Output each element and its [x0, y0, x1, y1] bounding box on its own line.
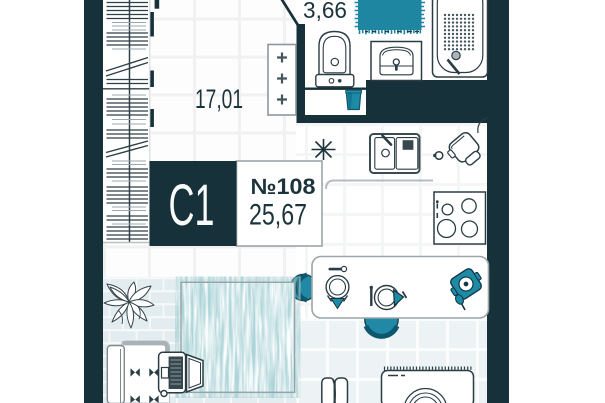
svg-text:C1: C1	[169, 173, 215, 238]
svg-text:3,66: 3,66	[303, 0, 347, 23]
svg-text:№108: №108	[251, 174, 316, 199]
svg-text:25,67: 25,67	[249, 199, 307, 232]
svg-text:17,01: 17,01	[195, 84, 243, 114]
